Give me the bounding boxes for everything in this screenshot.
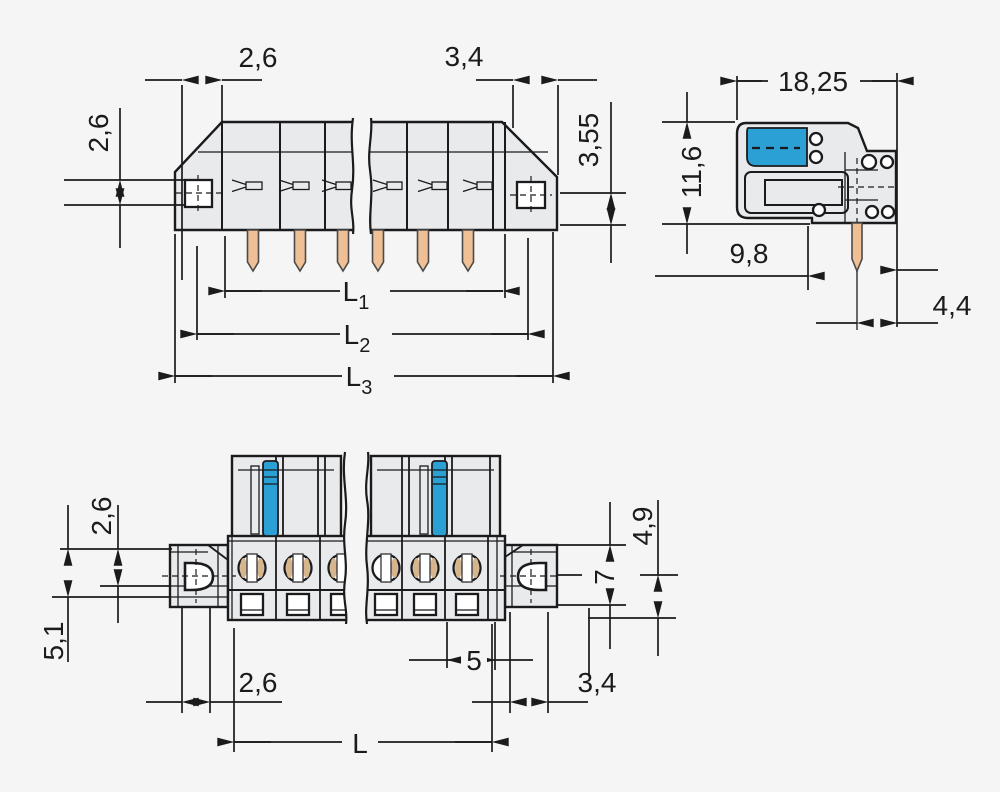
- dim-label: 11,6: [676, 146, 707, 198]
- flange-hole-left-bottom: [185, 563, 213, 590]
- side-view: 18,25 11,6 9,8 4,4: [655, 64, 971, 330]
- solder-pin-side: [852, 223, 862, 271]
- dim-label: 3,55: [573, 113, 604, 168]
- dim-label: 18,25: [778, 66, 848, 97]
- solder-pin: [295, 230, 306, 271]
- dim-side-4-4: 4,4: [816, 290, 971, 323]
- lever-slot-blue: [263, 461, 278, 536]
- dim-label: 3,4: [578, 667, 617, 698]
- lever-slot-blue: [432, 461, 447, 536]
- dim-side-18-25: 18,25: [737, 64, 897, 120]
- drawing-canvas: 2,6 3,4 2,6 3,55 L: [0, 0, 1000, 792]
- break-line: [344, 452, 369, 624]
- dim-bottom-3-4: 3,4: [472, 612, 616, 713]
- dim-front-2-6-left: 2,6: [64, 108, 186, 248]
- dim-bottom-2-6: 2,6: [146, 608, 282, 713]
- dim-bottom-5: 5: [409, 622, 533, 676]
- solder-pin: [463, 230, 474, 271]
- dim-label: 5: [466, 645, 482, 676]
- solder-pin: [373, 230, 384, 271]
- front-view: 2,6 3,4 2,6 3,55 L: [64, 41, 626, 399]
- dim-front-L3: L3: [175, 232, 553, 399]
- dim-bottom-4-9: 4,9: [588, 500, 676, 676]
- dim-bottom-2-6-left: 2,6: [52, 497, 172, 623]
- break-line: [351, 118, 371, 234]
- dim-label: 9,8: [730, 238, 769, 269]
- dim-label: 2,6: [83, 114, 114, 153]
- solder-pin: [248, 230, 259, 271]
- solder-pins: [248, 230, 474, 271]
- dim-bottom-7: 7: [558, 502, 678, 649]
- dim-bottom-5-1: 5,1: [38, 505, 69, 662]
- connector-dimension-drawing: 2,6 3,4 2,6 3,55 L: [0, 0, 1000, 792]
- dim-label: 4,4: [933, 290, 972, 321]
- dim-label: 2,6: [239, 667, 278, 698]
- dim-label: 5,1: [38, 622, 69, 661]
- solder-pin: [338, 230, 349, 271]
- dim-label: 7: [589, 569, 620, 585]
- bottom-view: 2,6 5,1 2,6 5 3,4: [38, 452, 678, 759]
- dim-label: 4,9: [627, 507, 658, 546]
- solder-pin: [418, 230, 429, 271]
- dim-label: L: [352, 728, 368, 759]
- dim-label: 2,6: [86, 497, 117, 536]
- dim-side-9-8: 9,8: [655, 226, 938, 290]
- dim-label: 2,6: [239, 42, 278, 73]
- dim-label: 3,4: [445, 41, 484, 72]
- dim-front-3-55: 3,55: [560, 102, 626, 263]
